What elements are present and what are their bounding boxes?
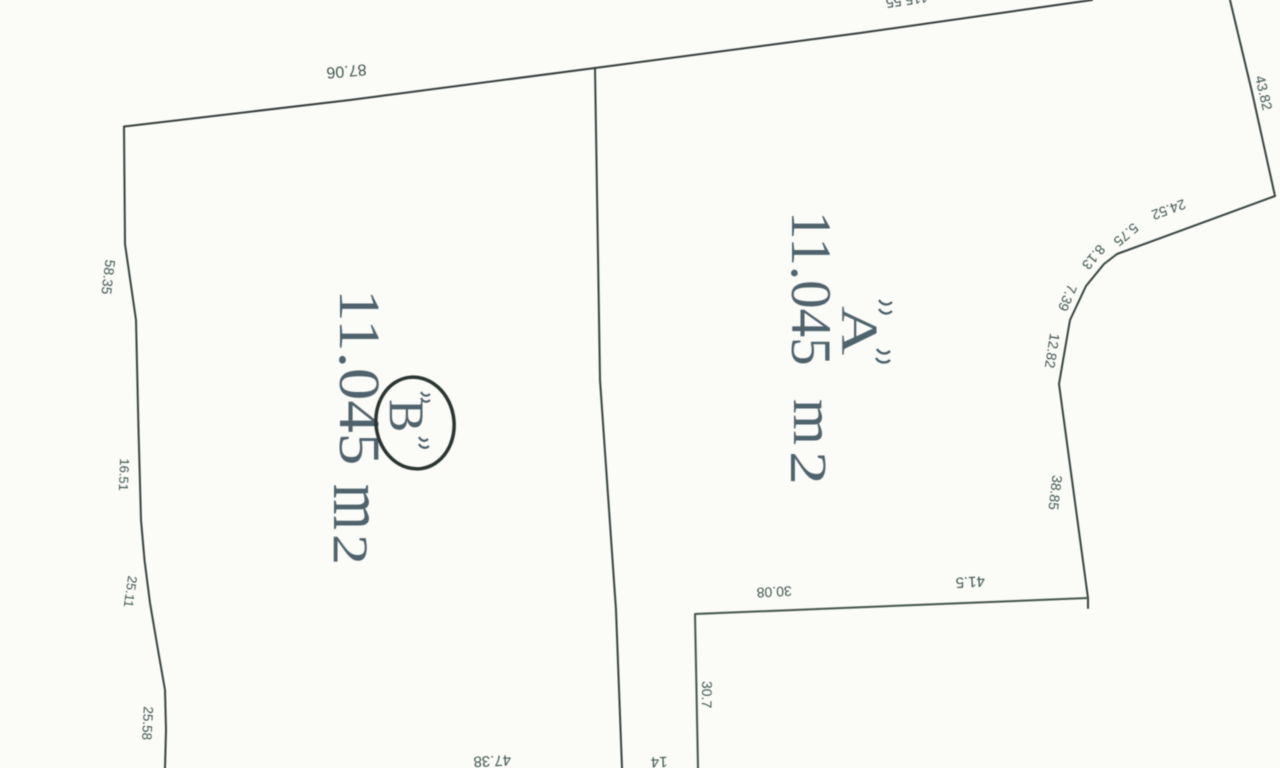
svg-text:m: m — [317, 484, 399, 530]
svg-text:25.58: 25.58 — [139, 706, 156, 741]
svg-text:11.045: 11.045 — [327, 289, 391, 465]
svg-text:m: m — [781, 399, 847, 445]
svg-text:14: 14 — [651, 753, 668, 768]
svg-text:2: 2 — [779, 451, 837, 485]
svg-text:2: 2 — [322, 534, 377, 565]
svg-text:B: B — [379, 399, 435, 432]
svg-text:A: A — [830, 306, 888, 355]
svg-text:47.38: 47.38 — [473, 751, 511, 768]
svg-text:87.06: 87.06 — [326, 60, 367, 80]
svg-text:16.51: 16.51 — [116, 458, 132, 491]
svg-text:30.7: 30.7 — [699, 681, 715, 709]
svg-text:30.08: 30.08 — [756, 583, 792, 601]
svg-text:41.5: 41.5 — [955, 572, 985, 591]
